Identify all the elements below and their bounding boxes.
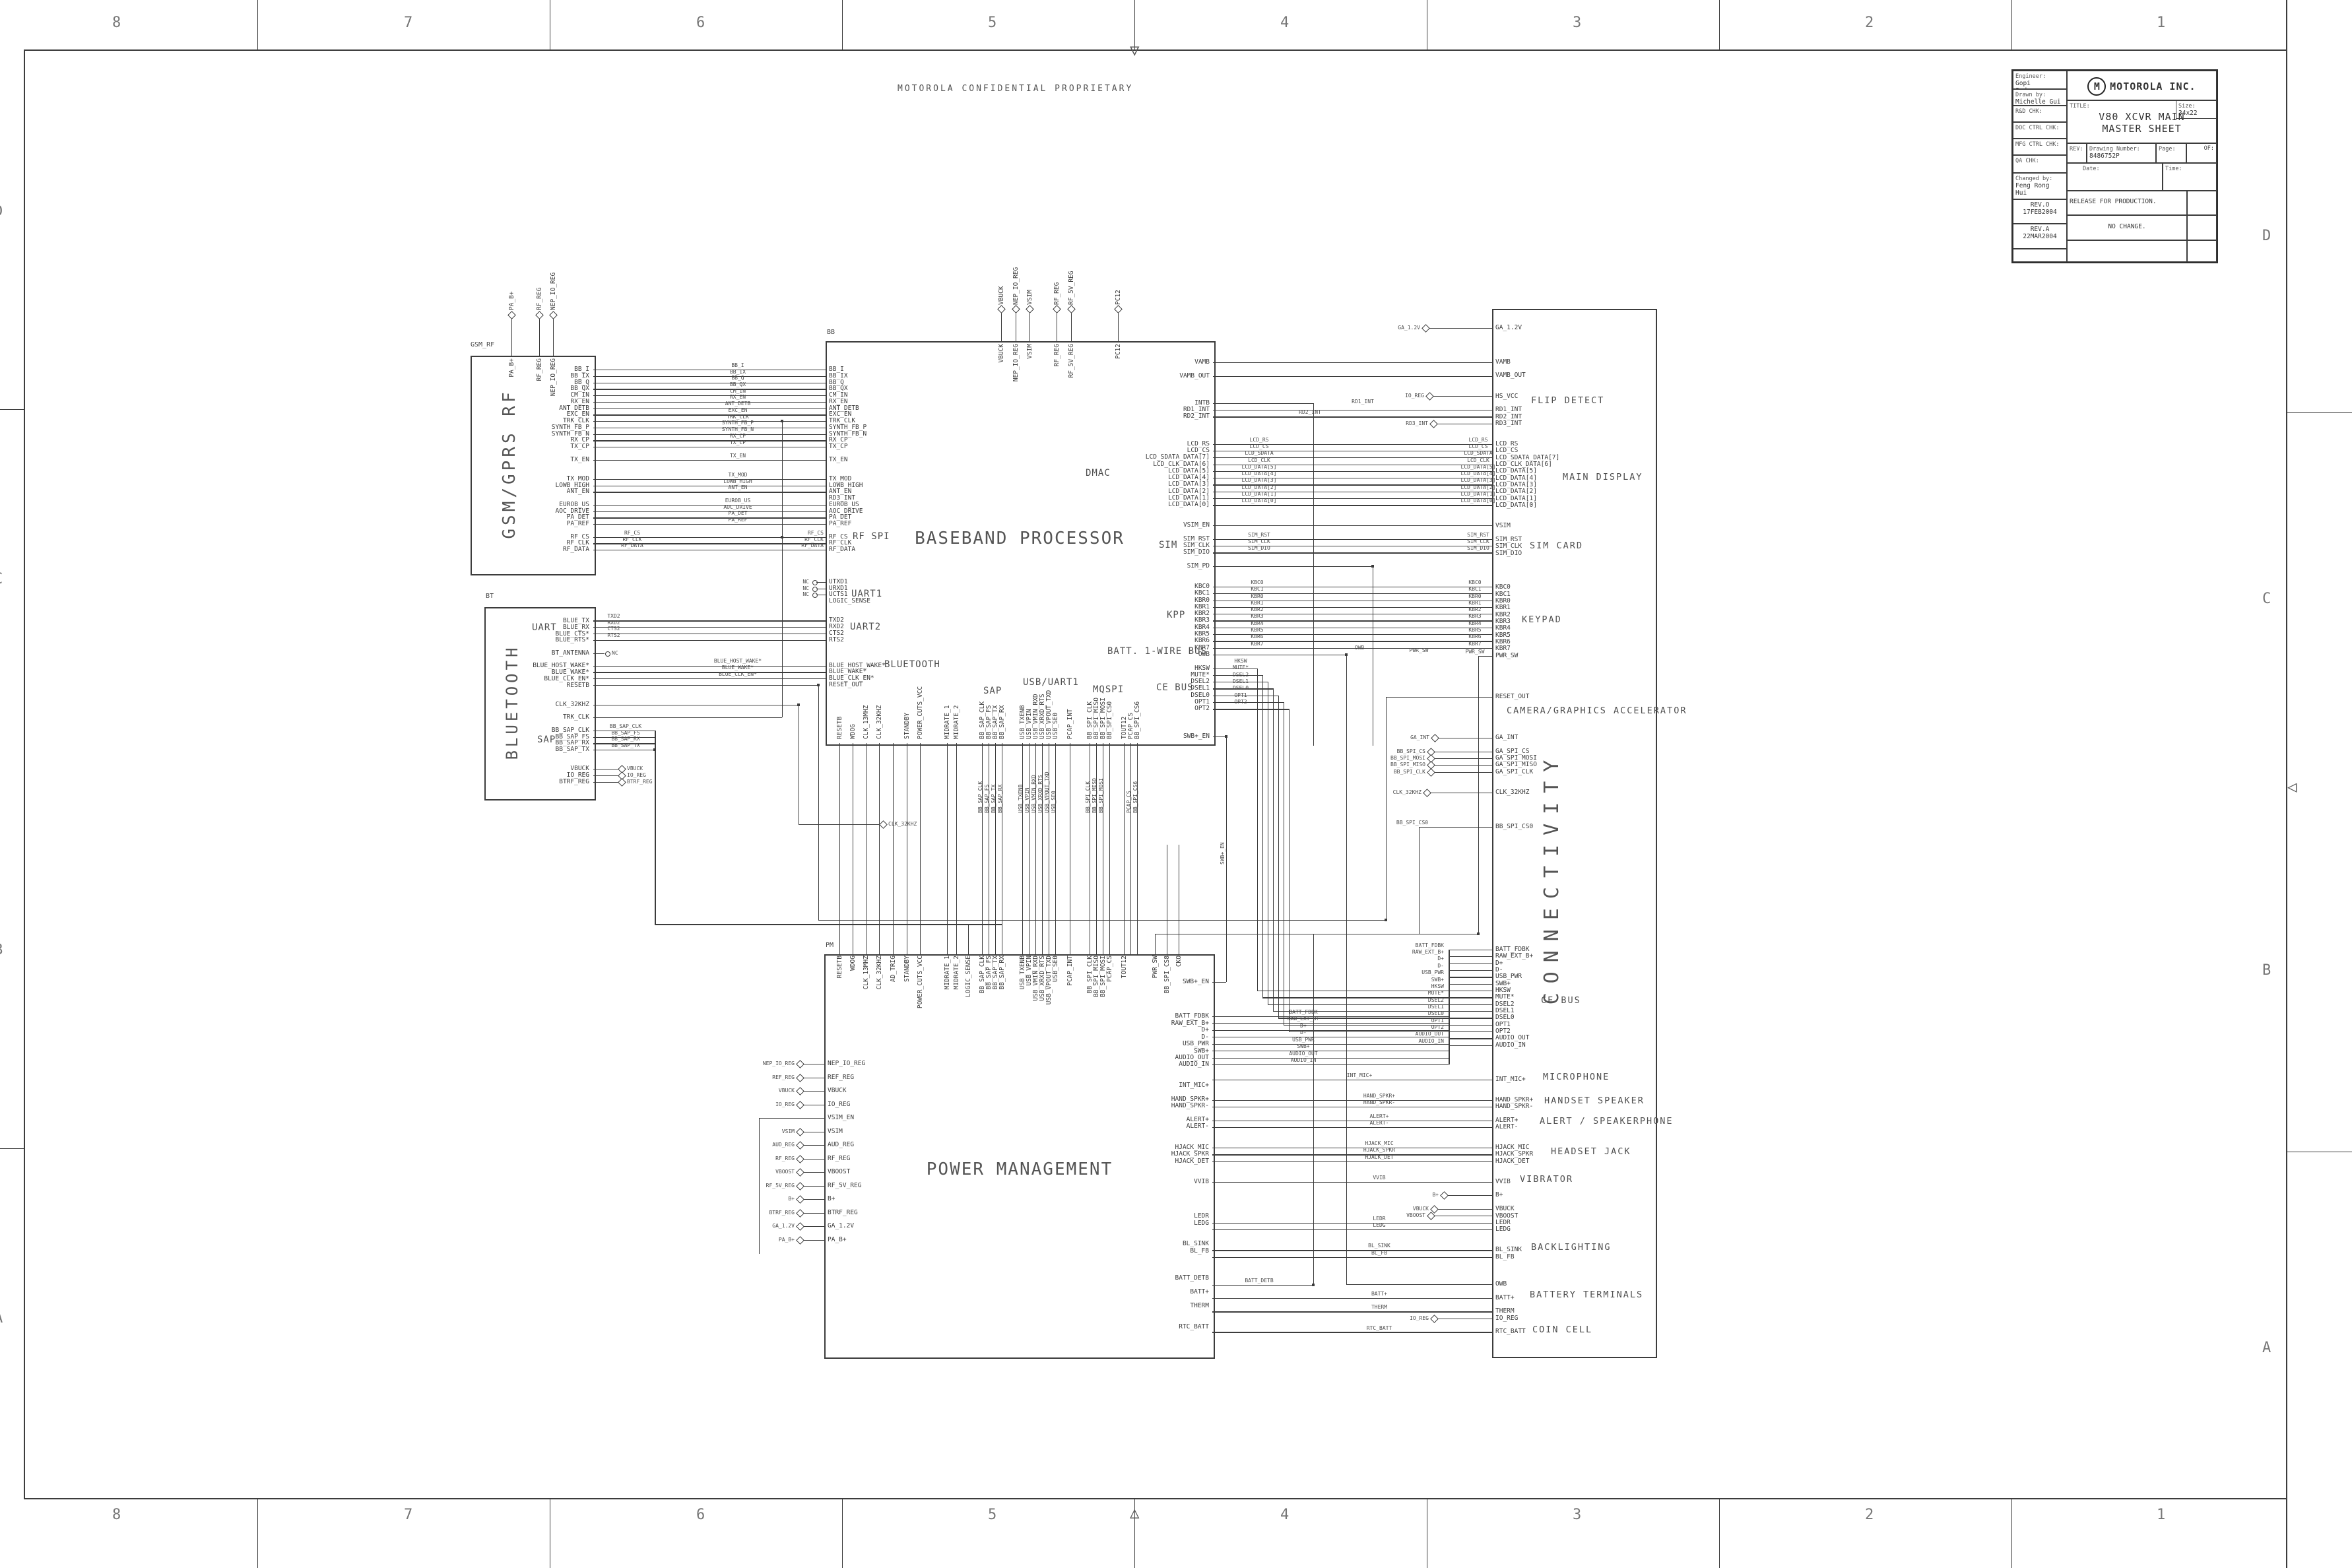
wire	[593, 775, 619, 776]
pin-bb-top-RF_REG: RF_REG	[1054, 344, 1061, 402]
net-label-LCD_DATA[2]: LCD_DATA[2]	[1220, 485, 1299, 490]
net-label-KBR6: KBR6	[1218, 634, 1297, 639]
net-label-HKSW: HKSW	[1365, 984, 1444, 989]
net-label-KBR6: KBR6	[1435, 634, 1515, 639]
pin-conn-RD1_INT: RD1_INT	[1495, 407, 1650, 413]
net-flag-icon	[796, 1074, 804, 1082]
net-flag-icon	[796, 1087, 804, 1095]
wire	[1435, 758, 1492, 759]
flag-GA_1.2V: GA_1.2V	[1341, 325, 1420, 331]
net-label-BB_SAP_TX: BB_SAP_TX	[991, 757, 996, 813]
wire	[1449, 950, 1450, 1064]
net-flag-icon	[1440, 1191, 1449, 1200]
net-label-HJACK_MIC: HJACK_MIC	[1340, 1141, 1419, 1146]
wire	[1437, 424, 1492, 424]
flag-VBUCK: VBUCK	[1350, 1206, 1429, 1212]
pin-pm-USB_PWR: USB_PWR	[1064, 1041, 1209, 1047]
pin-pm-ALERT-: ALERT-	[1064, 1123, 1209, 1130]
pin-gsm-BB_IX: BB_IX	[445, 373, 589, 379]
flag-bb-PC12: PC12	[1115, 252, 1122, 305]
wire	[593, 550, 826, 550]
pin-bb-SIM_CLK: SIM_CLK	[1064, 542, 1210, 549]
net-label-BLUE_CLK_EN*: BLUE_CLK_EN*	[698, 672, 777, 677]
pin-conn-RD2_INT: RD2_INT	[1495, 414, 1650, 420]
net-label-BB_Q: BB_Q	[698, 376, 777, 381]
zone-number-top: 2	[1865, 15, 1874, 31]
zone-number-bottom: 7	[404, 1507, 412, 1523]
net-label-KBR1: KBR1	[1435, 601, 1515, 606]
pin-bb-VAMB_OUT: VAMB_OUT	[1064, 373, 1210, 379]
net-label-LCD_DATA[1]: LCD_DATA[1]	[1220, 492, 1299, 497]
net-label-RAW_EXT_B+: RAW_EXT_B+	[1264, 1016, 1343, 1022]
pin-gsm-BB_Q: BB_Q	[445, 379, 589, 386]
size-value: 34x22	[2178, 110, 2198, 117]
wire	[1213, 736, 1226, 737]
wire	[816, 582, 826, 583]
pin-pm-top-MIDRATE_1: MIDRATE_1	[944, 956, 951, 1015]
schematic-sheet: MOTOROLA CONFIDENTIAL PROPRIETARY Engine…	[0, 0, 2352, 1568]
drawn-by-label: Drawn by:	[2015, 92, 2046, 98]
pin-conn-LEDR: LEDR	[1495, 1220, 1650, 1226]
pin-bb-RX_EN: RX_EN	[829, 399, 974, 405]
net-label-RAW_EXT_B+: RAW_EXT_B+	[1365, 950, 1444, 955]
net-label-SYNTH_FB_N: SYNTH_FB_N	[698, 427, 777, 432]
junction-dot	[817, 684, 820, 686]
pin-gsm-TX_CP: TX_CP	[445, 443, 589, 450]
group-label-USB/UART1: USB/UART1	[1023, 678, 1079, 687]
net-label-LCD_CLK: LCD_CLK	[1439, 458, 1518, 463]
pin-bb-RF_DATA: RF_DATA	[829, 546, 974, 553]
wire	[1212, 1107, 1492, 1107]
pin-gsm-top-PA_B+: PA_B+	[509, 358, 515, 416]
flag-GA_INT: GA_INT	[1350, 735, 1429, 740]
net-label-CM_IN: CM_IN	[698, 389, 777, 394]
net-label-RD1_INT: RD1_INT	[1323, 399, 1402, 405]
pin-conn-CLK_32KHZ: CLK_32KHZ	[1495, 789, 1650, 796]
net-label-VVIB: VVIB	[1340, 1175, 1419, 1181]
flag-IO_REG: IO_REG	[715, 1102, 795, 1107]
drawing-number: 8486752P	[2089, 152, 2120, 160]
net-label-USB_VPOUT_TXD: USB_VPOUT_TXD	[1045, 757, 1050, 813]
wire	[1070, 743, 1070, 954]
net-label-KBR3: KBR3	[1435, 614, 1515, 619]
flag-VBUCK: VBUCK	[627, 766, 643, 771]
net-label-BB_SPI_CLK: BB_SPI_CLK	[1086, 757, 1091, 813]
net-label-LCD_DATA[3]: LCD_DATA[3]	[1220, 478, 1299, 483]
pin-bb-KBR3: KBR3	[1064, 617, 1210, 624]
wire	[782, 421, 783, 717]
net-label-AUDIO_IN: AUDIO_IN	[1264, 1058, 1343, 1063]
net-label-TXD2: TXD2	[574, 614, 653, 619]
pin-conn-THERM: THERM	[1495, 1308, 1650, 1315]
rev2-note: NO CHANGE.	[2108, 223, 2145, 230]
pin-conn-B+: B+	[1495, 1192, 1650, 1198]
group-label-RF SPI: RF SPI	[853, 532, 890, 541]
pin-conn-LCD_DATA[3]: LCD_DATA[3]	[1495, 482, 1650, 488]
wire	[1268, 682, 1268, 1004]
pin-conn-PWR_SW: PWR_SW	[1495, 653, 1650, 659]
pin-bb-BB_I: BB_I	[829, 366, 974, 373]
pin-conn-DSEL1: DSEL1	[1495, 1008, 1650, 1014]
pin-conn-VBOOST: VBOOST	[1495, 1213, 1650, 1220]
pin-conn-KBR7: KBR7	[1495, 645, 1650, 652]
net-flag-icon	[1430, 1315, 1439, 1323]
pin-bb-SYNTH_FB_P: SYNTH_FB_P	[829, 424, 974, 431]
pin-bb-top-PC12: PC12	[1115, 344, 1122, 402]
pin-pm-RF_REG: RF_REG	[828, 1156, 960, 1162]
net-label-KBR4: KBR4	[1218, 621, 1297, 626]
pin-gsm-CM_IN: CM_IN	[445, 392, 589, 399]
net-label-RTS2: RTS2	[574, 633, 653, 638]
wire	[1213, 525, 1492, 526]
pin-pm-PA_B+: PA_B+	[828, 1237, 960, 1243]
flag-VBUCK: VBUCK	[715, 1088, 795, 1094]
net-label-DSEL0: DSEL0	[1365, 1011, 1444, 1016]
pin-gsm-PA_REF: PA_REF	[445, 521, 589, 527]
wire	[1057, 311, 1057, 341]
wire	[1429, 328, 1492, 329]
pin-bb-KBC0: KBC0	[1064, 583, 1210, 590]
net-label-KBR0: KBR0	[1435, 594, 1515, 599]
net-label-LCD_RS: LCD_RS	[1439, 438, 1518, 443]
flag-BB_SPI_CS: BB_SPI_CS	[1346, 749, 1425, 754]
pin-pm-BL_FB: BL_FB	[1064, 1248, 1209, 1255]
wire	[1262, 675, 1263, 998]
wire	[1435, 752, 1492, 752]
net-label-AUDIO_OUT: AUDIO_OUT	[1365, 1031, 1444, 1037]
pin-bb-bottom-MIDRATE_1: MIDRATE_1	[944, 680, 951, 739]
pin-pm-D-: D-	[1064, 1034, 1209, 1041]
net-label-HJACK_SPKR: HJACK_SPKR	[1340, 1148, 1419, 1153]
changed-by-name: Feng Rong Hui	[2015, 182, 2049, 197]
net-label-BB_SPI_MISO: BB_SPI_MISO	[1092, 757, 1097, 813]
peripheral-label-BACKLIGHTING: BACKLIGHTING	[1531, 1243, 1612, 1253]
net-label-BATT_FDBK: BATT_FDBK	[1264, 1010, 1343, 1015]
net-label-KBC0: KBC0	[1218, 580, 1297, 585]
pin-conn-LEDG: LEDG	[1495, 1226, 1650, 1233]
pin-conn-RESET_OUT: RESET_OUT	[1495, 694, 1650, 700]
net-label-KBC0: KBC0	[1435, 580, 1515, 585]
row-letter-right: B	[2262, 962, 2271, 979]
junction-dot	[1371, 565, 1374, 568]
wire	[24, 1498, 2286, 1499]
net-flag-icon	[997, 305, 1006, 313]
wire	[1386, 697, 1492, 698]
flag-bb-VSIM: VSIM	[1027, 252, 1033, 305]
pin-pm-top-CKO: CKO	[1176, 956, 1183, 1015]
junction-dot	[1385, 919, 1387, 921]
title-label: TITLE:	[2070, 103, 2090, 110]
pin-conn-D+: D+	[1495, 960, 1650, 967]
net-label-BLUE_WAKE*: BLUE_WAKE*	[698, 665, 777, 670]
pin-bb-RTS2: RTS2	[829, 637, 974, 643]
wire	[1226, 736, 1227, 983]
doc-chk-label: DOC CTRL CHK:	[2015, 125, 2060, 131]
flag-RD3_INT: RD3_INT	[1349, 421, 1428, 426]
wire	[1273, 688, 1274, 1011]
pin-gsm-RX_CP: RX_CP	[445, 437, 589, 443]
wire	[853, 743, 853, 954]
pin-conn-LCD_SDATA_DATA[7]: LCD_SDATA_DATA[7]	[1495, 455, 1650, 461]
flag-B+: B+	[715, 1196, 795, 1202]
company-name: MOTOROLA INC.	[2110, 81, 2196, 92]
net-flag-icon	[1423, 789, 1431, 797]
net-label-RX_CP: RX_CP	[698, 434, 777, 439]
pin-bb-EUROB_US: EUROB_US	[829, 502, 974, 508]
pin-conn-GA_SPI_CS: GA_SPI_CS	[1495, 748, 1650, 755]
pin-pm-SWB+_EN: SWB+_EN	[1064, 979, 1209, 985]
net-label-AUDIO_IN: AUDIO_IN	[1365, 1039, 1444, 1044]
pin-pm-top-CLK_32KHZ: CLK_32KHZ	[876, 956, 883, 1015]
pin-gsm-RX_EN: RX_EN	[445, 399, 589, 405]
pin-pm-BTRF_REG: BTRF_REG	[828, 1210, 960, 1216]
net-label-SYNTH_FB_P: SYNTH_FB_P	[698, 420, 777, 426]
wire	[879, 743, 880, 954]
pin-conn-GA_1.2V: GA_1.2V	[1495, 325, 1650, 331]
pin-pm-HJACK_MIC: HJACK_MIC	[1064, 1144, 1209, 1151]
flag-CLK_32KHZ: CLK_32KHZ	[1342, 790, 1421, 795]
flag-RF_5V_REG: RF_5V_REG	[715, 1183, 795, 1189]
pin-bb-RX_CP: RX_CP	[829, 437, 974, 443]
net-label-SWB+: SWB+	[1365, 977, 1444, 983]
flag-gsm-NEP_IO_REG: NEP_IO_REG	[550, 257, 557, 310]
date-label: Date:	[2083, 166, 2100, 172]
net-label-AOC_DRIVE: AOC_DRIVE	[698, 505, 777, 510]
flag-bb-NEP_IO_REG: NEP_IO_REG	[1013, 252, 1020, 305]
wire	[1449, 956, 1492, 957]
pin-conn-LCD_DATA[1]: LCD_DATA[1]	[1495, 496, 1650, 502]
wire	[257, 1498, 258, 1568]
net-flag-icon	[879, 820, 888, 829]
wire	[759, 1118, 760, 1254]
net-label-LCD_DATA[5]: LCD_DATA[5]	[1439, 465, 1518, 470]
net-label-D-: D-	[1365, 964, 1444, 969]
wire	[1213, 709, 1289, 709]
wire	[1439, 738, 1492, 738]
pin-pm-LEDR: LEDR	[1064, 1213, 1209, 1220]
wire	[1213, 655, 1346, 655]
net-label-MUTE*: MUTE*	[1201, 665, 1280, 670]
wire	[804, 1145, 824, 1146]
zone-number-bottom: 6	[696, 1507, 705, 1523]
wire	[553, 318, 554, 356]
wire	[1212, 1127, 1492, 1128]
pin-pm-THERM: THERM	[1064, 1303, 1209, 1309]
net-label-BB_I: BB_I	[698, 363, 777, 368]
flag-gsm-PA_B+: PA_B+	[509, 257, 515, 310]
wire	[1427, 0, 1427, 49]
pin-pm-HJACK_DET: HJACK_DET	[1064, 1158, 1209, 1165]
wire	[947, 743, 948, 954]
pin-bb-SIM_PD: SIM_PD	[1064, 563, 1210, 570]
net-label-MUTE*: MUTE*	[1365, 991, 1444, 996]
pin-bb-CM_IN: CM_IN	[829, 392, 974, 399]
net-label-BB_SAP_CLK: BB_SAP_CLK	[978, 757, 983, 813]
group-label-MQSPI: MQSPI	[1093, 685, 1124, 694]
wire	[593, 705, 799, 705]
wire	[1213, 362, 1492, 363]
wire	[1449, 1045, 1492, 1046]
pin-gsm-TX_EN: TX_EN	[445, 457, 589, 463]
net-label-LCD_CLK: LCD_CLK	[1220, 458, 1299, 463]
junction-dot	[781, 420, 783, 422]
wire	[1719, 1498, 1720, 1568]
pin-pm-SWB+: SWB+	[1064, 1048, 1209, 1055]
group-label-SIM: SIM	[1159, 540, 1177, 550]
pin-bb-bottom-WDOG: WDOG	[850, 680, 857, 739]
net-label-USB_SE0: USB_SE0	[1051, 757, 1057, 813]
net-flag-icon	[1067, 305, 1076, 313]
wire	[655, 924, 1002, 925]
wire	[804, 1172, 824, 1173]
rev1-note: RELEASE FOR PRODUCTION.	[2070, 198, 2157, 205]
net-label-SIM_RST: SIM_RST	[1439, 533, 1518, 538]
confidential-note: MOTOROLA CONFIDENTIAL PROPRIETARY	[898, 84, 1133, 93]
net-label-USB_TXENB: USB_TXENB	[1018, 757, 1024, 813]
pin-bb-top-RF_5V_REG: RF_5V_REG	[1068, 344, 1075, 402]
pin-pm-top-POWER_CUTS_VCC: POWER_CUTS_VCC	[917, 956, 924, 1015]
net-flag-icon	[796, 1155, 804, 1163]
pin-bb-UTXD1: UTXD1	[829, 579, 974, 585]
net-label-EUROB_US: EUROB_US	[698, 498, 777, 504]
row-letter-left: D	[0, 203, 3, 220]
wire	[1124, 743, 1125, 954]
group-label-DMAC: DMAC	[1086, 469, 1111, 478]
wire	[920, 743, 921, 954]
peripheral-label-VIBRATOR: VIBRATOR	[1520, 1175, 1573, 1185]
pin-gsm-BB_I: BB_I	[445, 366, 589, 373]
net-label-USB_PWR: USB_PWR	[1365, 970, 1444, 975]
wire	[1419, 827, 1492, 828]
wire	[1435, 765, 1492, 766]
net-label-ANT_DETB: ANT_DETB	[698, 401, 777, 407]
block-ref-bb: BB	[827, 329, 835, 336]
pin-bb-bottom-CLK_32KHZ: CLK_32KHZ	[876, 680, 883, 739]
wire	[759, 1118, 824, 1119]
rev-label: REV:	[2070, 146, 2083, 152]
nc-label: NC	[787, 586, 809, 591]
net-label-SWB+_EN: SWB+_EN	[1220, 808, 1225, 865]
wire	[1212, 1257, 1492, 1258]
net-label-LEDG: LEDG	[1340, 1223, 1419, 1228]
wire	[804, 1078, 824, 1078]
pin-bb-VSIM_EN: VSIM_EN	[1064, 522, 1210, 529]
net-label-TX_EN: TX_EN	[698, 453, 777, 459]
pin-pm-top-STANDBY: STANDBY	[904, 956, 911, 1015]
net-label-BB_SAP_RX: BB_SAP_RX	[998, 757, 1003, 813]
net-label-D-: D-	[1264, 1030, 1343, 1035]
pin-pm-BATT_DETB: BATT_DETB	[1064, 1275, 1209, 1282]
pin-bb-bottom-POWER_CUTS_VCC: POWER_CUTS_VCC	[917, 680, 924, 739]
wire	[593, 750, 655, 750]
pin-bb-INTB: INTB	[1064, 400, 1210, 407]
pin-bb-LCD_DATA[3]: LCD_DATA[3]	[1064, 481, 1210, 488]
pin-bt-BB_SAP_CLK: BB_SAP_CLK	[445, 727, 589, 734]
changed-by-label: Changed by:	[2015, 176, 2052, 182]
pin-conn-VAMB: VAMB	[1495, 359, 1650, 366]
net-flag-icon	[796, 1101, 804, 1109]
wire	[842, 1498, 843, 1568]
pin-bb-LCD_DATA[1]: LCD_DATA[1]	[1064, 495, 1210, 502]
pin-conn-OPT1: OPT1	[1495, 1022, 1650, 1028]
wire	[593, 460, 826, 461]
net-label-TRK_CLK: TRK_CLK	[698, 414, 777, 420]
net-label-LCD_DATA[5]: LCD_DATA[5]	[1220, 465, 1299, 470]
rev1: REV.O	[2031, 201, 2050, 209]
zone-number-bottom: 8	[112, 1507, 121, 1523]
wire	[2011, 1498, 2012, 1568]
net-flag-icon	[796, 1128, 804, 1136]
net-label-BATT_DETB: BATT_DETB	[1220, 1278, 1299, 1284]
pin-bt-BLUE_RTS*: BLUE_RTS*	[445, 637, 589, 643]
pin-conn-D-: D-	[1495, 967, 1650, 973]
wire	[866, 743, 866, 954]
pin-gsm-RF_DATA: RF_DATA	[445, 546, 589, 553]
pin-pm-REF_REG: REF_REG	[828, 1074, 960, 1081]
pin-conn-USB_PWR: USB_PWR	[1495, 973, 1650, 980]
wire	[1213, 566, 1373, 567]
peripheral-label-FLIP DETECT: FLIP DETECT	[1531, 397, 1604, 406]
qa-chk-label: QA CHK:	[2015, 158, 2039, 164]
pin-conn-KBR2: KBR2	[1495, 612, 1650, 618]
pin-bb-LCD_CLK_DATA[6]: LCD_CLK_DATA[6]	[1064, 461, 1210, 468]
row-letter-right: D	[2262, 228, 2271, 244]
wire	[2286, 1152, 2352, 1152]
net-flag-icon	[1114, 305, 1123, 313]
pin-pm-top-BB_SAP_RX: BB_SAP_RX	[999, 956, 1006, 1015]
row-letter-left: A	[0, 1310, 3, 1326]
pin-bb-KBR2: KBR2	[1064, 610, 1210, 617]
wire	[839, 743, 840, 954]
wire	[816, 589, 826, 589]
net-label-D+: D+	[1264, 1024, 1343, 1029]
net-label-DSEL2: DSEL2	[1201, 672, 1280, 678]
wire	[0, 1148, 24, 1149]
net-label-DSEL1: DSEL1	[1365, 1004, 1444, 1010]
wire	[1278, 696, 1279, 1018]
net-label-HAND_SPKR+: HAND_SPKR+	[1340, 1094, 1419, 1099]
pin-pm-top-BB_SPI_CS8: BB_SPI_CS8	[1164, 956, 1171, 1015]
net-label-LCD_DATA[0]: LCD_DATA[0]	[1439, 498, 1518, 504]
net-label-ALERT-: ALERT-	[1340, 1121, 1419, 1126]
flag-NEP_IO_REG: NEP_IO_REG	[715, 1061, 795, 1066]
net-label-HKSW: HKSW	[1201, 659, 1280, 664]
wire	[1346, 1284, 1492, 1285]
pin-pm-HJACK_SPKR: HJACK_SPKR	[1064, 1151, 1209, 1158]
pin-pm-top-AD_TRIG: AD_TRIG	[890, 956, 897, 1015]
pin-bb-LCD_DATA[2]: LCD_DATA[2]	[1064, 488, 1210, 495]
net-label-BB_SPI_CS0: BB_SPI_CS0	[1373, 820, 1452, 826]
flag-BB_SPI_MISO: BB_SPI_MISO	[1346, 762, 1425, 768]
net-label-PA_REF: PA_REF	[698, 517, 777, 523]
pin-gsm-ANT_EN: ANT_EN	[445, 488, 589, 495]
pin-bb-KBC1: KBC1	[1064, 590, 1210, 597]
wire	[2011, 0, 2012, 49]
pin-conn-KBR6: KBR6	[1495, 639, 1650, 645]
pin-pm-ALERT+: ALERT+	[1064, 1117, 1209, 1123]
wire	[1213, 410, 1492, 410]
pin-conn-GA_SPI_CLK: GA_SPI_CLK	[1495, 769, 1650, 775]
net-label-ANT_EN: ANT_EN	[698, 485, 777, 490]
pin-pm-RAW_EXT_B+: RAW_EXT_B+	[1064, 1020, 1209, 1027]
net-label-SIM_CLK: SIM_CLK	[1220, 539, 1299, 544]
pin-pm-BATT_FDBK: BATT_FDBK	[1064, 1013, 1209, 1020]
net-label-LCD_DATA[2]: LCD_DATA[2]	[1439, 485, 1518, 490]
peripheral-label-COIN CELL: COIN CELL	[1532, 1326, 1592, 1335]
net-flag-icon	[796, 1195, 804, 1204]
pin-bt-TRK_CLK: TRK_CLK	[445, 714, 589, 721]
pin-bb-SIM_RST: SIM_RST	[1064, 536, 1210, 542]
